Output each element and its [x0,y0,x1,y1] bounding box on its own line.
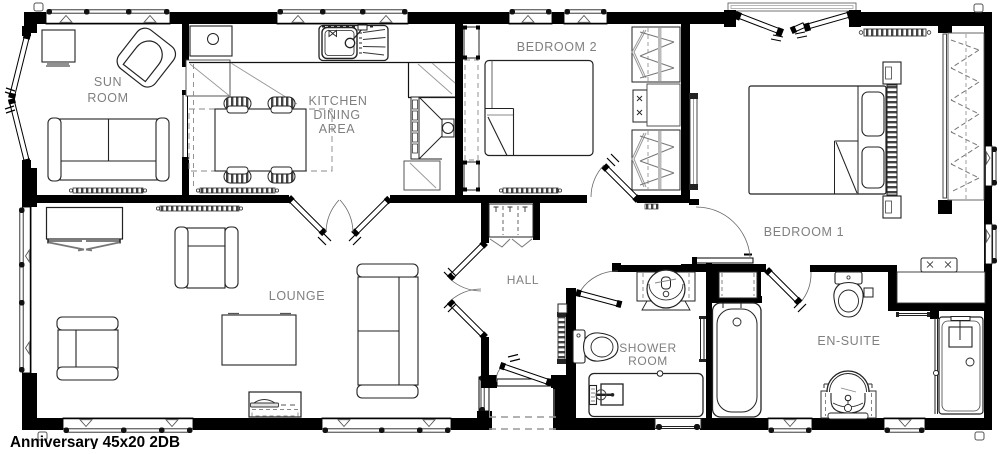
svg-text:SHOWER: SHOWER [619,341,677,355]
svg-text:KITCHEN: KITCHEN [308,94,367,108]
svg-text:BEDROOM 2: BEDROOM 2 [517,40,597,54]
svg-text:ROOM: ROOM [628,354,668,368]
svg-text:HALL: HALL [507,273,539,287]
svg-text:EN-SUITE: EN-SUITE [817,334,880,348]
svg-text:Anniversary 45x20 2DB: Anniversary 45x20 2DB [10,434,180,449]
svg-text:LOUNGE: LOUNGE [269,289,325,303]
svg-text:AREA: AREA [319,122,356,136]
svg-text:BEDROOM 1: BEDROOM 1 [764,225,844,239]
svg-text:ROOM: ROOM [87,91,128,105]
svg-text:SUN: SUN [94,75,122,89]
svg-text:DINING: DINING [313,108,360,122]
